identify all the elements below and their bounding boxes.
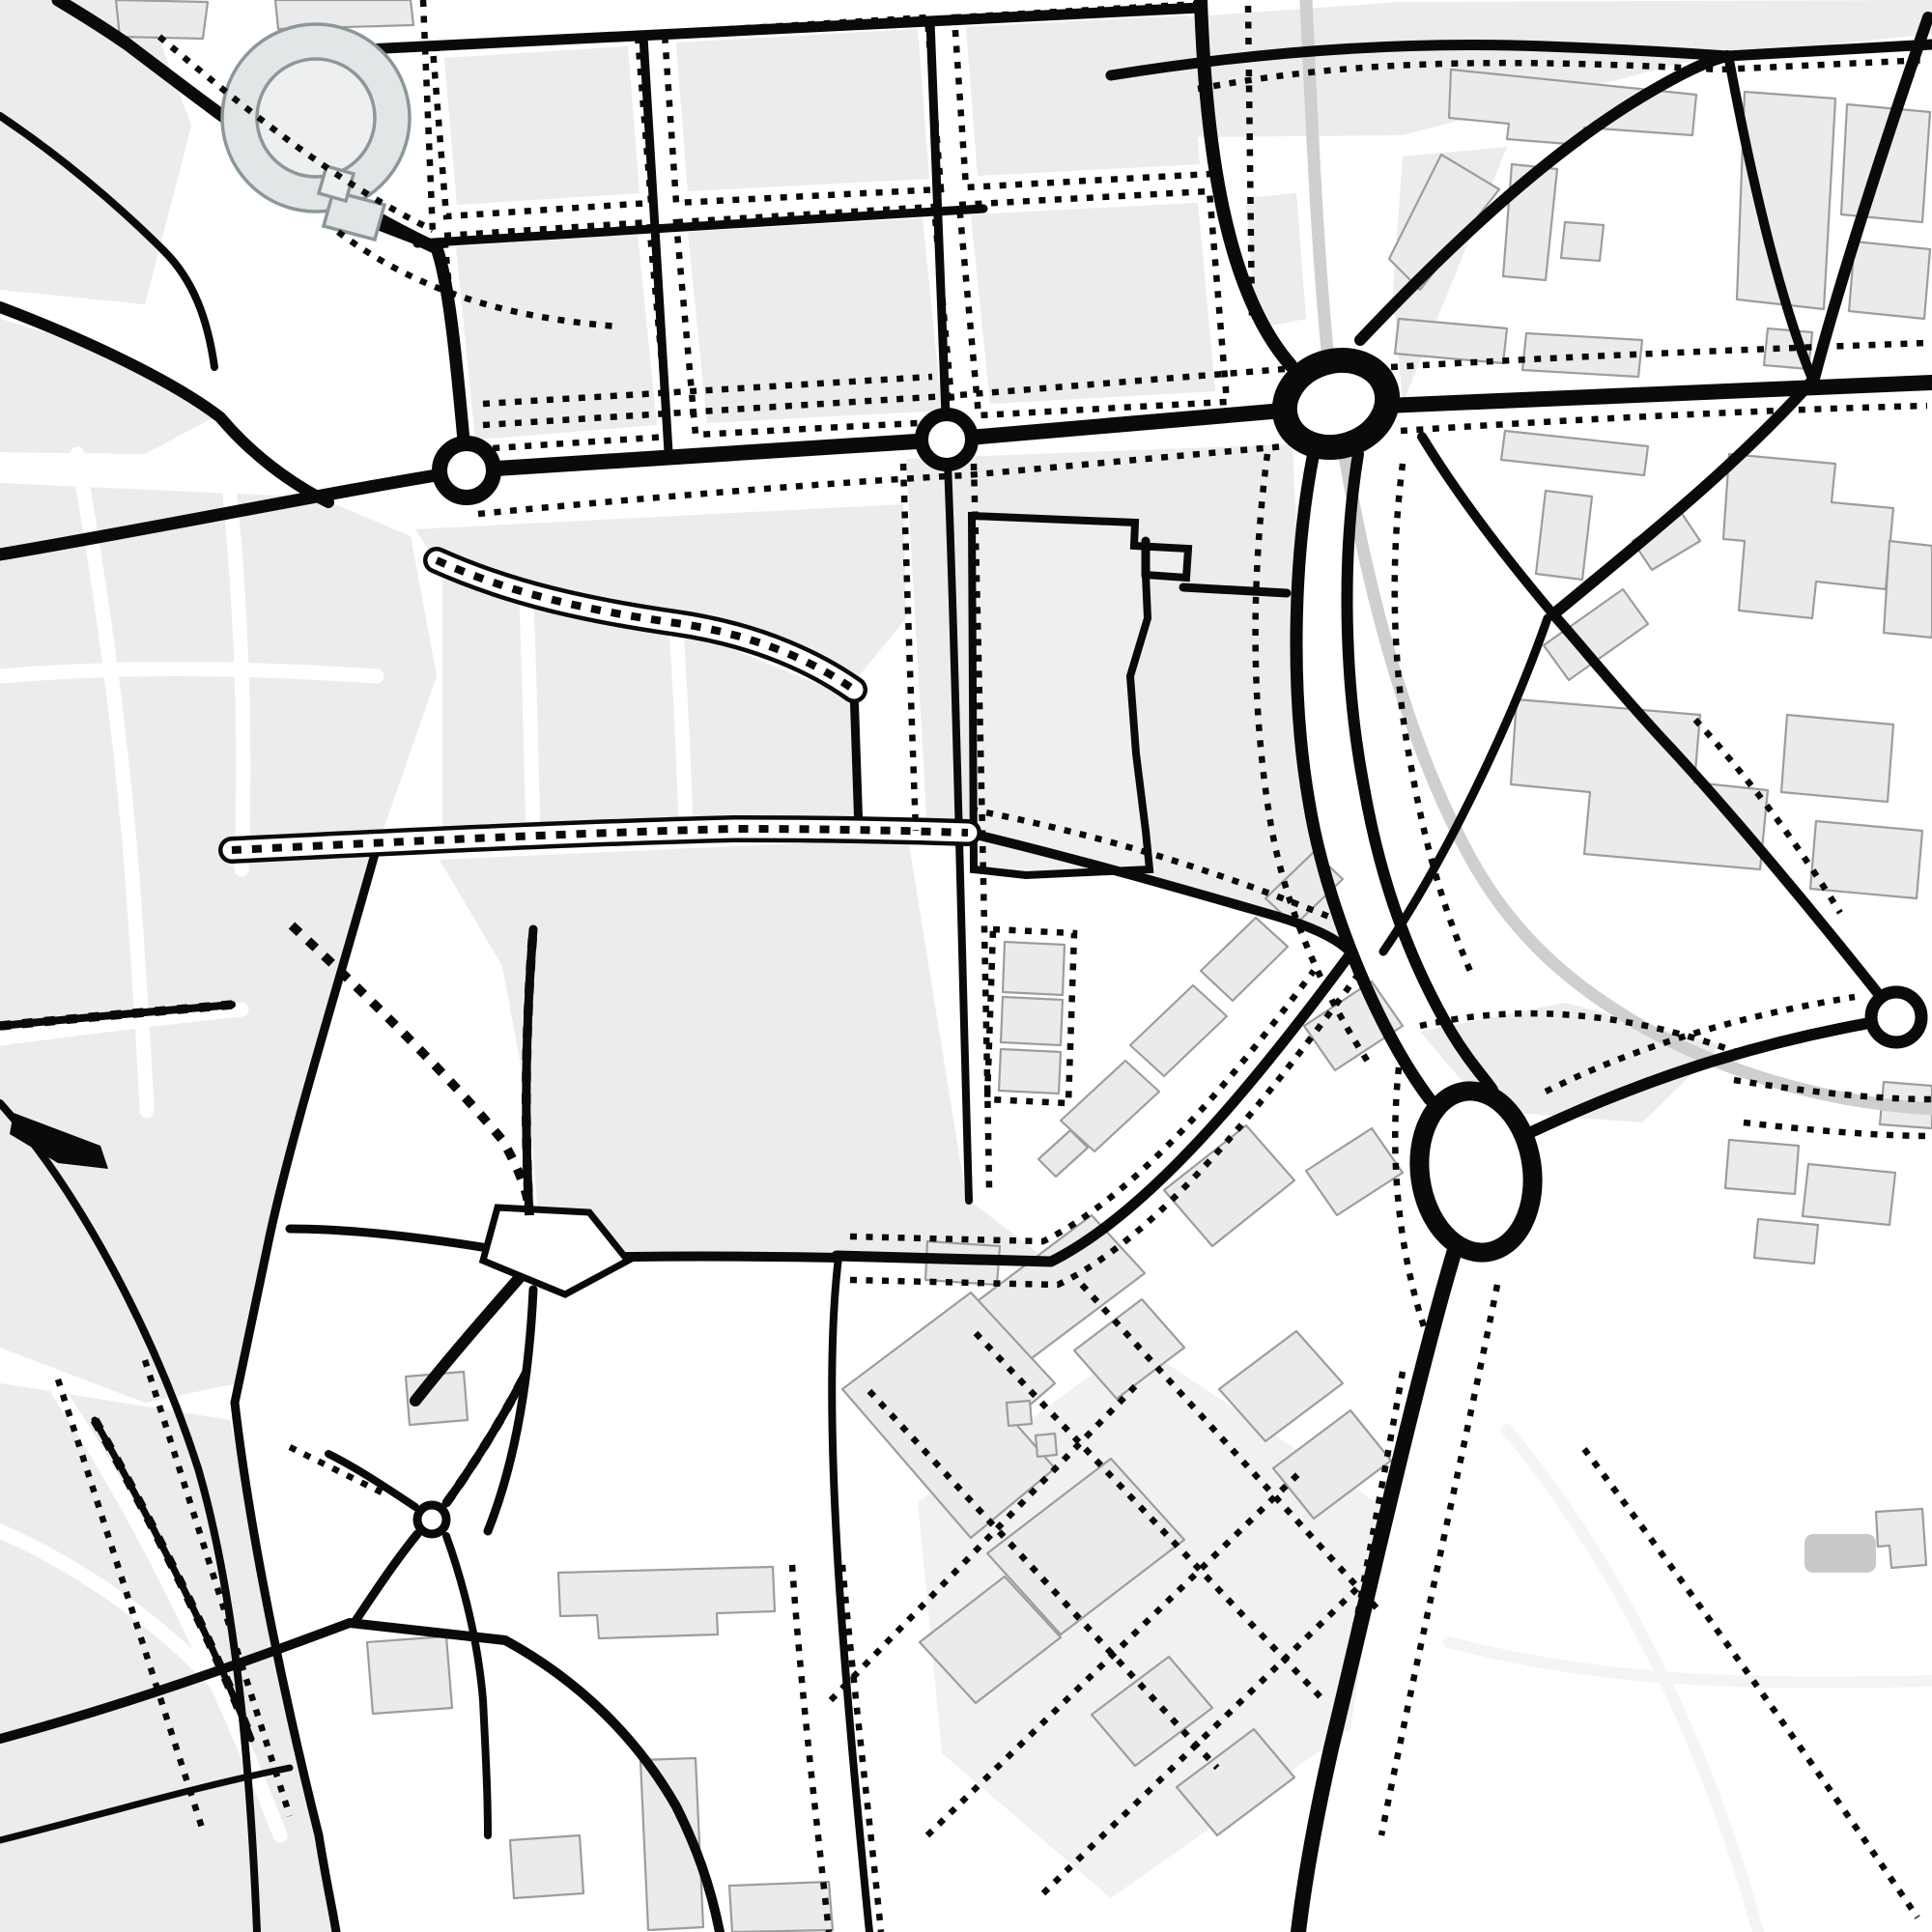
mini-roundabout-southwest — [417, 1505, 446, 1534]
dark-building — [1804, 1534, 1876, 1573]
map-canvas[interactable] — [0, 0, 1932, 1932]
roundabout-east — [1871, 992, 1921, 1042]
faint-paths — [1449, 1430, 1932, 1932]
roundabout-west — [440, 443, 494, 497]
stadium-arena-ring — [222, 24, 410, 240]
roundabout-center — [922, 414, 972, 465]
